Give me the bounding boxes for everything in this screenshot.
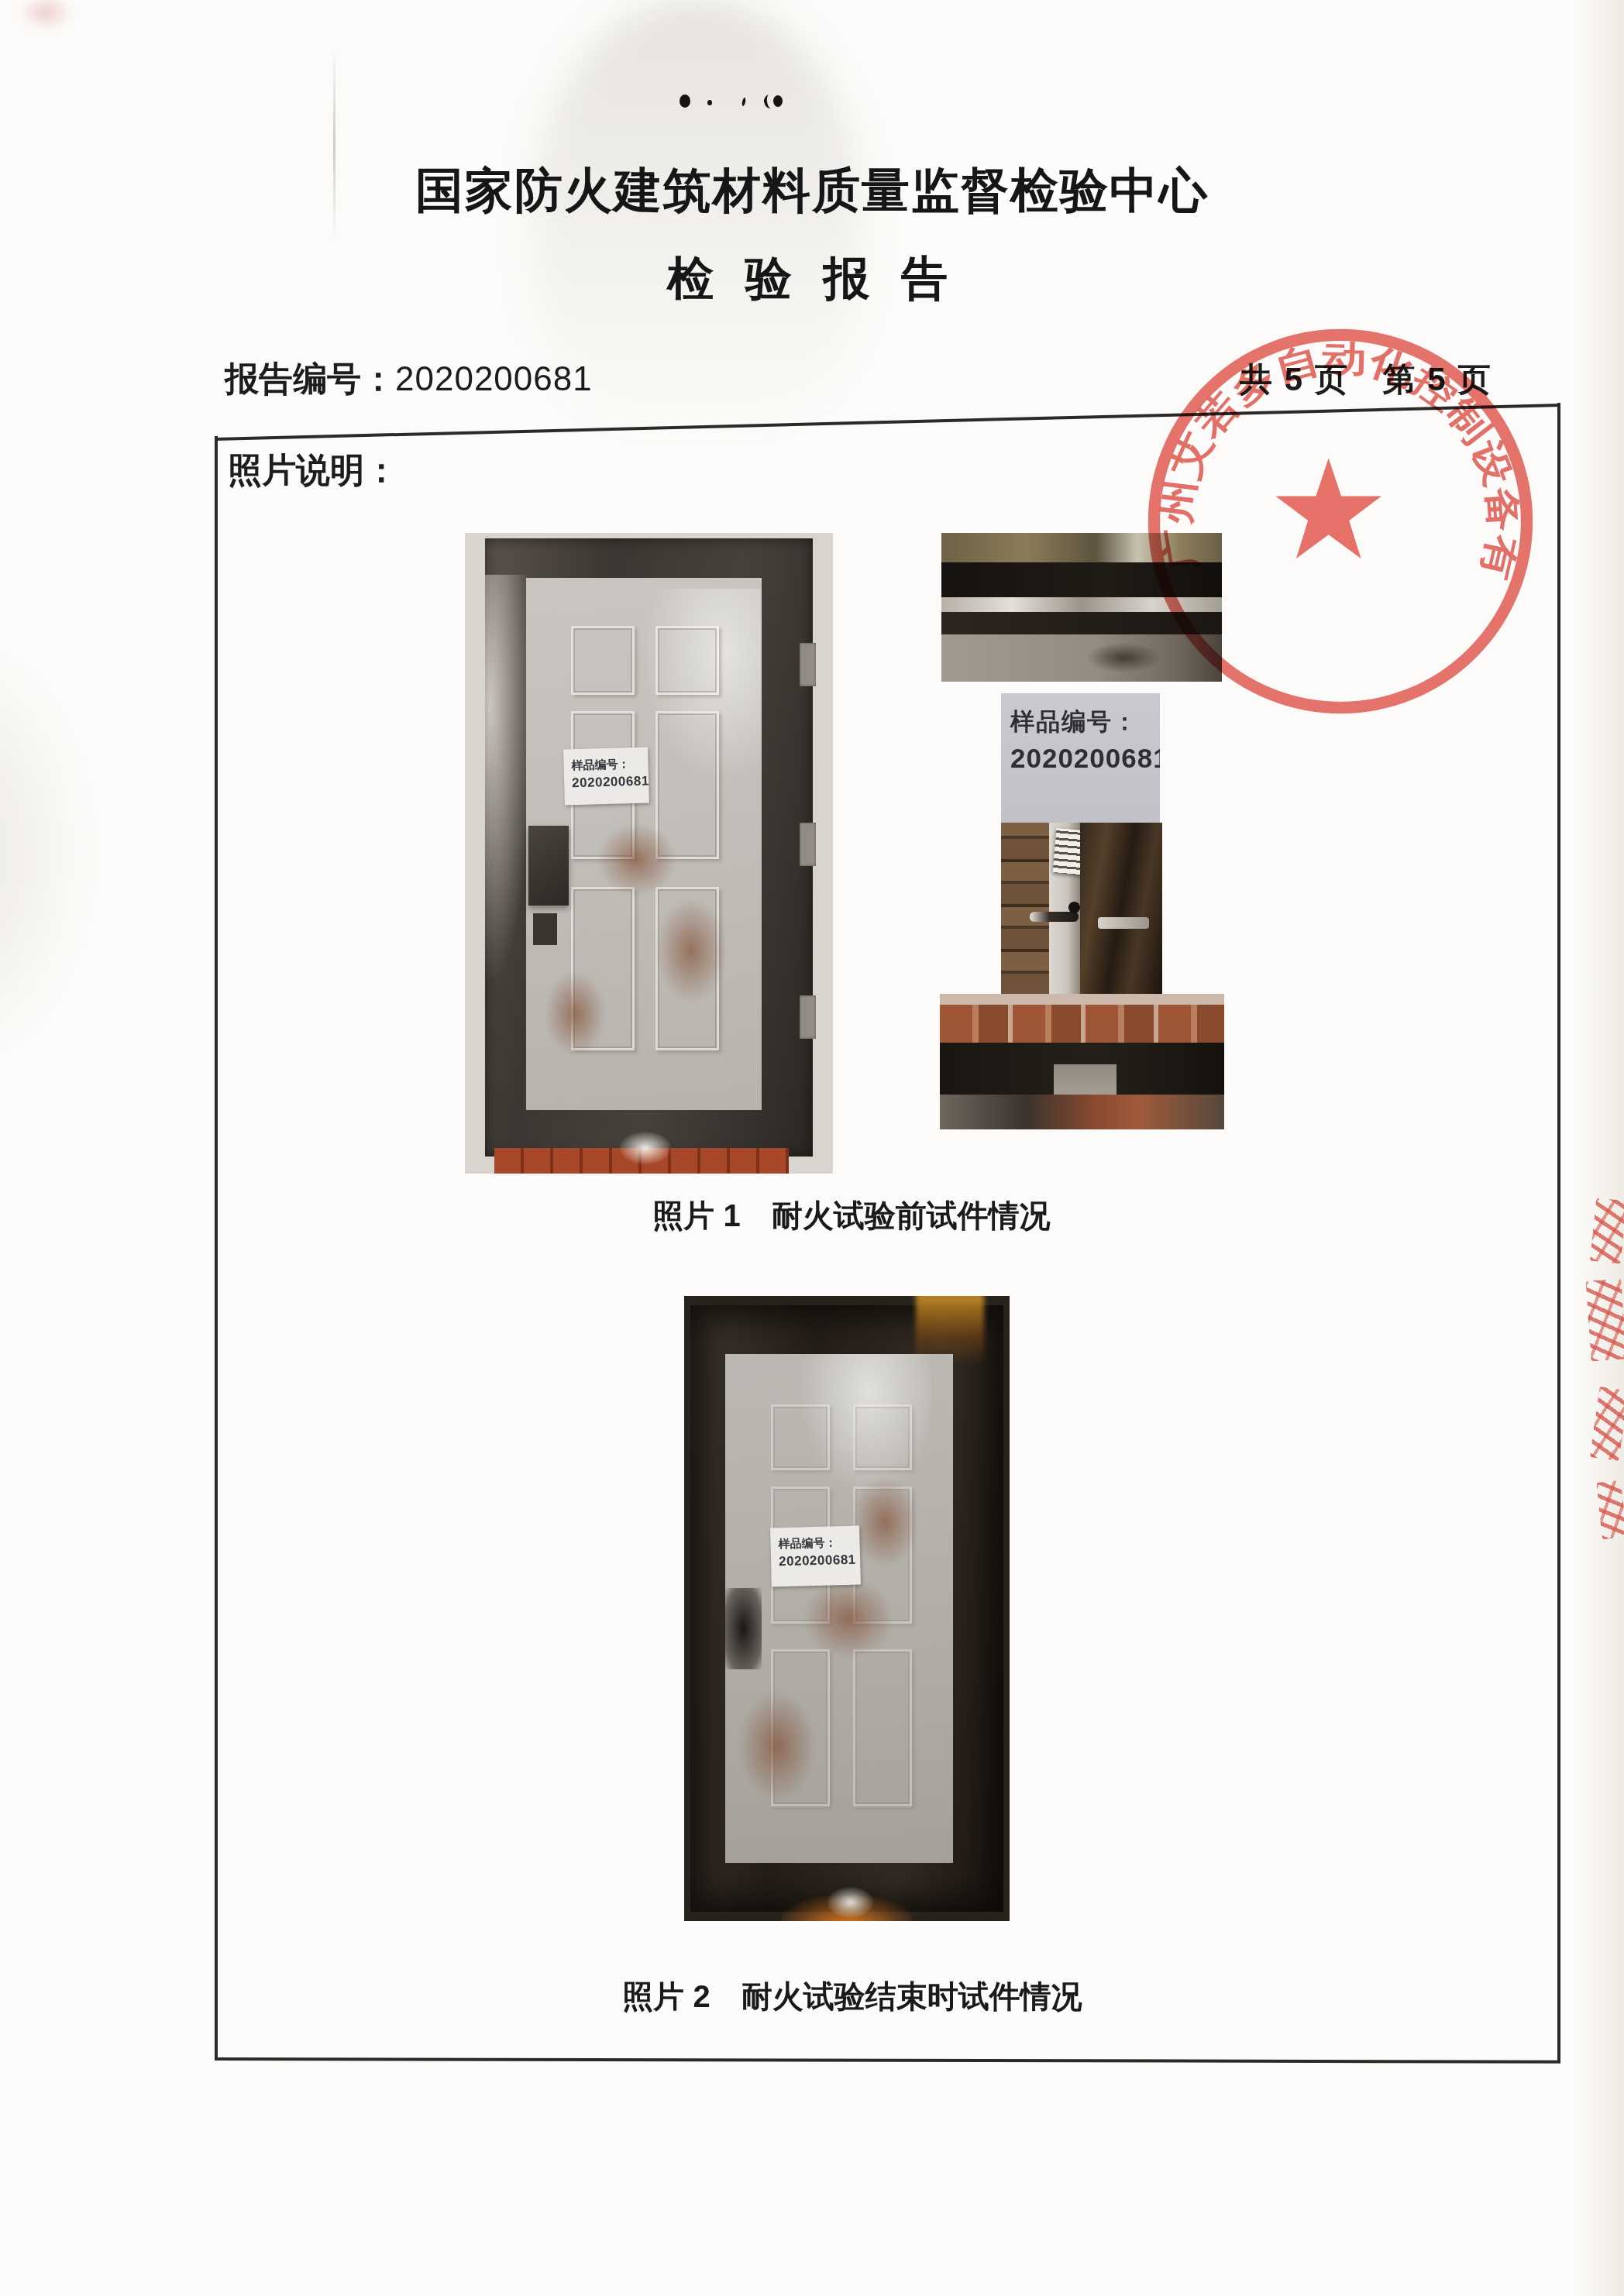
door-hinge (800, 823, 816, 866)
photo-description-label: 照片说明： (228, 448, 398, 493)
door-panel (853, 1404, 913, 1470)
door-panel (655, 626, 719, 694)
photo-caption-1: 照片 1 耐火试验前试件情况 (503, 1194, 1200, 1237)
photo-caption-2: 照片 2 耐火试验结束时试件情况 (504, 1975, 1201, 2018)
floor-debris (620, 1132, 672, 1163)
door-hinge (800, 643, 816, 686)
ink-dot (680, 95, 690, 108)
red-stamp-fragment (1590, 1198, 1624, 1264)
door-leaf: 样品编号： 2020200681 (725, 1354, 953, 1864)
door-lock-lower (533, 913, 556, 945)
sample-label-number: 2020200681 (1010, 743, 1160, 774)
document-subtitle: 检 验 报 告 (0, 248, 1624, 311)
door-panel (571, 626, 635, 694)
door-panel (771, 1404, 831, 1470)
brick-column (1001, 823, 1049, 994)
sample-label-number: 2020200681 (778, 1551, 854, 1572)
metal-bar (1098, 917, 1150, 929)
sample-number-sticker: 样品编号： 2020200681 (563, 748, 649, 806)
photo-1-before-test: 样品编号： 2020200681 (465, 533, 833, 1174)
company-stamp: 广州艾若多自动化控制设备有限公司 (1133, 316, 1548, 727)
rusty-sill-band (940, 1005, 1224, 1043)
sample-number-sticker: 样品编号： 2020200681 (770, 1526, 861, 1587)
door-hinge (800, 995, 816, 1039)
rust-blotch (545, 971, 606, 1057)
photo-detail-lock-edge (1001, 823, 1162, 994)
lock-burn-area (725, 1588, 762, 1669)
stamp-company-text: 广州艾若多自动化控制设备有限公司 (1133, 316, 1525, 583)
report-number-value: 2020200681 (395, 359, 593, 397)
rust-blotch (597, 823, 676, 897)
door-leaf: 样品编号： 2020200681 (526, 578, 762, 1109)
door-lock-plate (528, 826, 569, 906)
dark-interior (1080, 823, 1162, 994)
scan-smudge-pink (19, 0, 73, 31)
stamp-star-icon (1275, 458, 1381, 558)
photo-2-after-test: 样品编号： 2020200681 (684, 1296, 1010, 1921)
mixed-rubble-band (940, 1095, 1224, 1130)
ink-dot (773, 95, 783, 107)
scan-edge-shadow (1578, 0, 1624, 2296)
floor-debris (827, 1887, 873, 1918)
door-handle (1030, 912, 1078, 922)
photo-detail-bottom-edge (940, 994, 1224, 1129)
document-title: 国家防火建筑材料质量监督检验中心 (0, 158, 1624, 223)
rust-blotch (655, 897, 726, 1003)
door-frame-charred: 样品编号： 2020200681 (690, 1305, 1003, 1912)
box-border-right (1557, 403, 1560, 2061)
sample-label-number: 2020200681 (572, 772, 643, 793)
box-border-left (215, 436, 218, 2061)
red-stamp-fragment (1585, 1279, 1624, 1362)
burn-blotch (738, 1690, 816, 1803)
door-frame: 样品编号： 2020200681 (485, 538, 813, 1157)
box-border-bottom (215, 2057, 1560, 2064)
report-number-label: 报告编号： (225, 359, 395, 397)
lock-knob (1068, 902, 1080, 913)
ink-dot (707, 100, 712, 105)
sample-label-title: 样品编号： (571, 755, 642, 774)
door-panel (853, 1649, 913, 1806)
sample-label-title: 样品编号： (778, 1534, 854, 1552)
scan-shadow-left (0, 651, 85, 1053)
burn-blotch (851, 1476, 919, 1568)
report-number-row: 报告编号：2020200681 (225, 356, 593, 402)
burn-blotch (803, 1578, 894, 1659)
